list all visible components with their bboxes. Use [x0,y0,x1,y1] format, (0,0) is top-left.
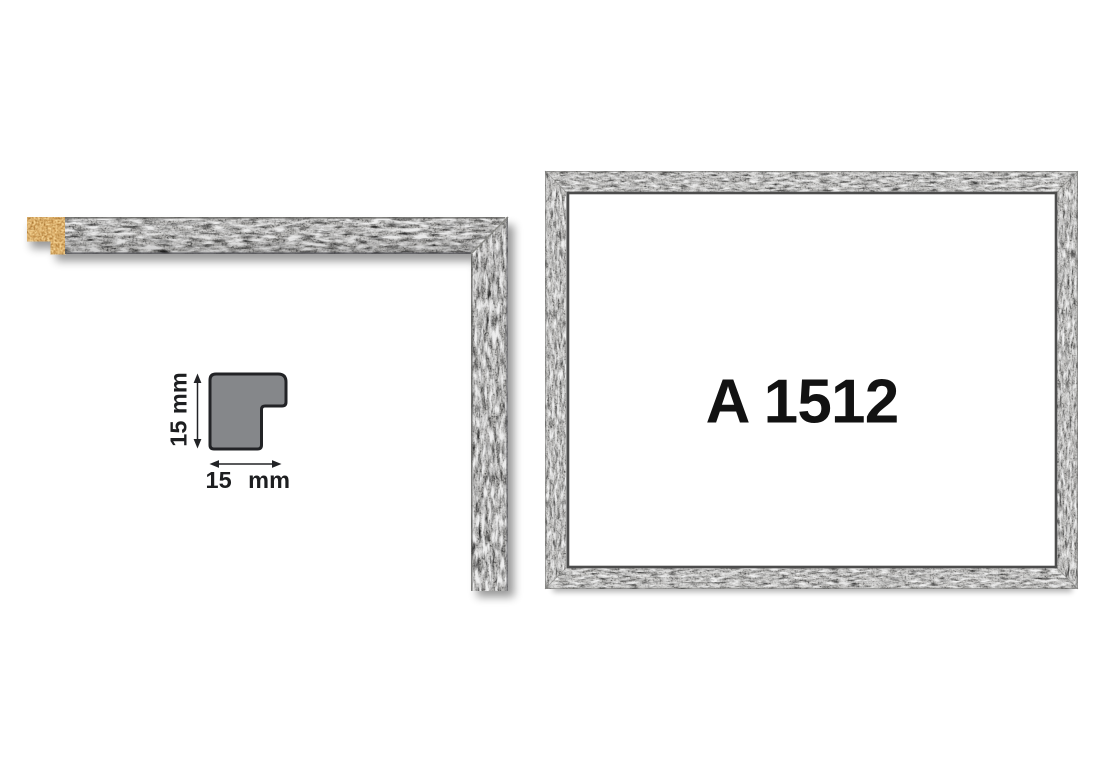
svg-text:15 mm: 15 mm [166,372,192,446]
svg-text:A 1512: A 1512 [706,368,899,437]
svg-text:15 mm: 15 mm [206,467,290,493]
